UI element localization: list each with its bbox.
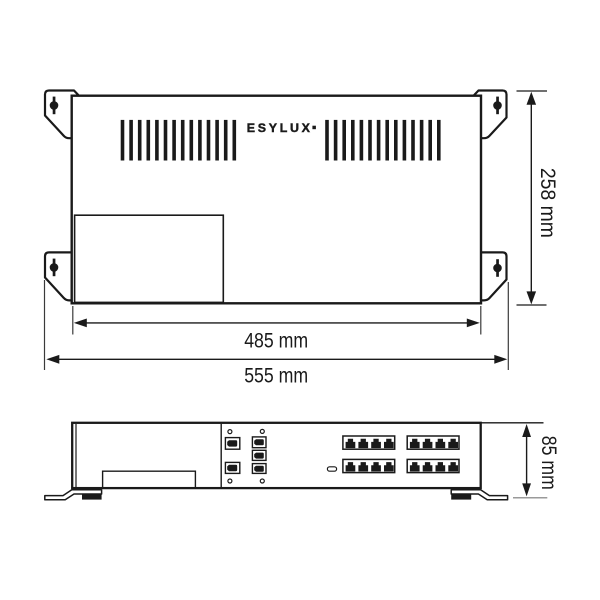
svg-text:ESYLUX: ESYLUX <box>247 121 313 135</box>
svg-text:258 mm: 258 mm <box>536 168 559 238</box>
svg-text:555 mm: 555 mm <box>244 364 308 387</box>
svg-text:485 mm: 485 mm <box>244 329 308 352</box>
svg-text:85 mm: 85 mm <box>537 436 560 490</box>
